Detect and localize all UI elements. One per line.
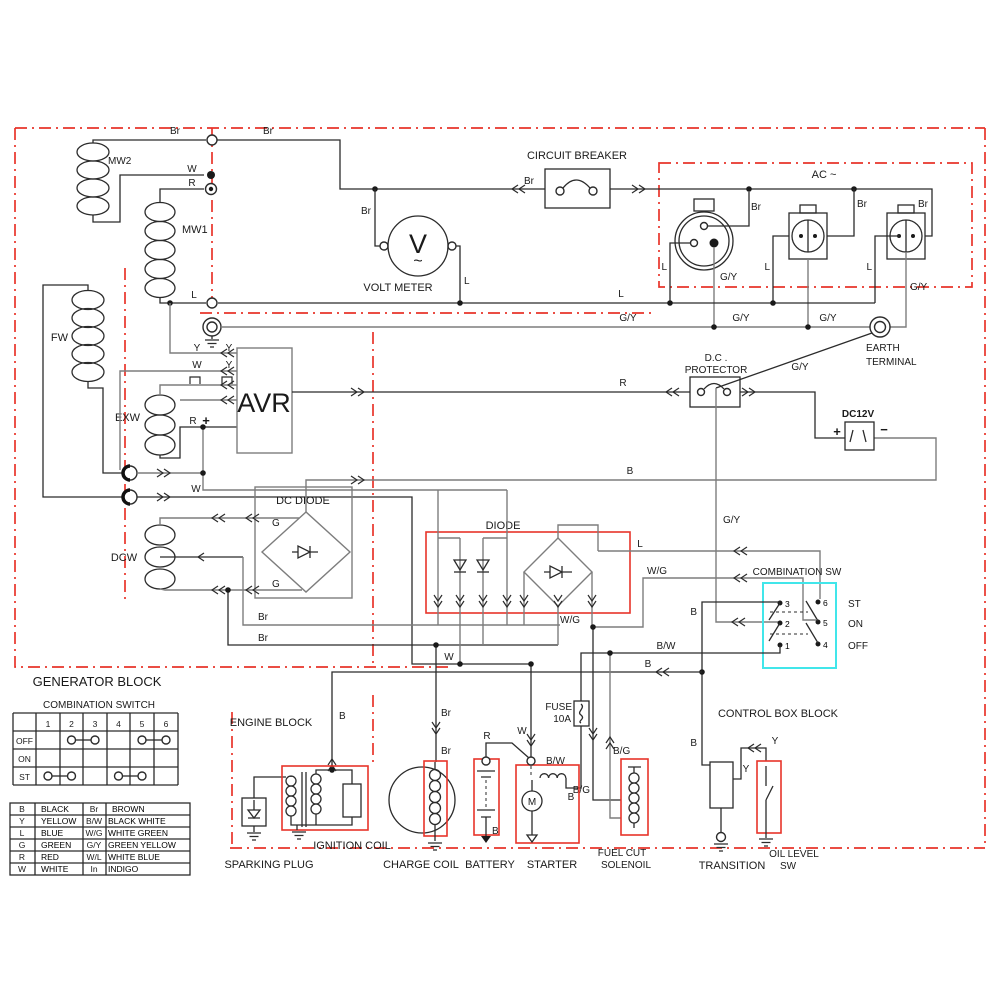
combination-sw: G/Y L W/G W/G COMBINATION SW 3 6 2 5 1 4… (560, 388, 868, 668)
wire-label-br: Br (258, 612, 269, 623)
wire-label-w: W (192, 360, 202, 371)
coil-mw2: MW2 (77, 140, 206, 222)
wire-label-y: Y (226, 360, 233, 371)
charge-coil-label: CHARGE COIL (383, 859, 459, 871)
wire-label-w: W (187, 164, 197, 175)
wire-label-br: Br (263, 126, 274, 137)
fuse-label2: 10A (553, 714, 571, 725)
legend-name: BLACK WHITE (108, 816, 166, 826)
legend-name: YELLOW (41, 816, 76, 826)
volt-meter: V ~ VOLT METER Br L (361, 189, 470, 303)
wire-label-w: W (517, 726, 527, 737)
transition: TRANSITION (699, 762, 766, 872)
oil-level-sw: Y Y OIL LEVEL SW (733, 736, 819, 872)
table-col-1: 1 (46, 719, 51, 729)
bullet-connectors: W (123, 466, 531, 757)
legend-name: WHITE BLUE (108, 852, 160, 862)
coil-label-exw: EXW (115, 412, 141, 424)
wire-label-l: L (661, 262, 667, 273)
ac-block-label: AC ~ (812, 169, 837, 181)
wire-label-b: B (492, 826, 499, 837)
ac-outlet-3: Br L G/Y (866, 199, 928, 327)
wire-label-g: G (272, 518, 280, 529)
combination-switch-table-title: COMBINATION SWITCH (43, 700, 155, 711)
fuel-cut-solenoid: FUEL CUT SOLENOIL (598, 759, 652, 871)
wire-label-l: L (191, 290, 197, 301)
ignition-coil-label: IGNITION COIL (313, 840, 391, 852)
circuit-breaker-label: CIRCUIT BREAKER (527, 150, 627, 162)
br-buses: Br Br (225, 557, 560, 645)
legend-code: W (18, 864, 26, 874)
wire-label-l: L (464, 276, 470, 287)
wire-label-y: Y (226, 343, 233, 354)
legend-code: In (90, 864, 97, 874)
l-bus: L (167, 289, 875, 306)
b-wire: B B B B (328, 602, 780, 771)
legend-code: R (19, 852, 25, 862)
wire-label-gy: G/Y (819, 313, 837, 324)
starter-motor-label: M (528, 797, 536, 808)
table-row-off: OFF (16, 736, 33, 746)
table-col-5: 5 (140, 719, 145, 729)
legend-code: B (19, 804, 25, 814)
oil-level-label2: SW (780, 861, 797, 872)
fuel-cut-label2: SOLENOIL (601, 860, 651, 871)
diode-label: DIODE (486, 520, 521, 532)
dc-protector: D.C . PROTECTOR R (292, 353, 845, 438)
wire-label-l: L (637, 539, 643, 550)
circuit-breaker: CIRCUIT BREAKER (527, 150, 627, 208)
legend-name: INDIGO (108, 864, 139, 874)
wire-label-gy: G/Y (791, 362, 809, 373)
earth-terminal-label1: EARTH (866, 343, 900, 354)
wire-label-gy: G/Y (723, 515, 741, 526)
table-row-st: ST (19, 772, 30, 782)
sparking-plug-label: SPARKING PLUG (224, 859, 313, 871)
color-legend-table: B BLACK Br BROWN Y YELLOW B/W BLACK WHIT… (10, 803, 190, 875)
generator-terminals: Br W R L (170, 126, 221, 347)
wire-label-r: R (189, 416, 196, 427)
dc12v-socket: DC12V + − (833, 409, 888, 450)
gy-bus: G/Y G/Y G/Y (221, 313, 870, 330)
legend-code: Br (90, 804, 99, 814)
wire-label-gy: G/Y (619, 313, 637, 324)
legend-code: Y (19, 816, 25, 826)
control-box-label: CONTROL BOX BLOCK (718, 708, 839, 720)
wire-label-b: B (339, 711, 346, 722)
wire-label-wg: W/G (560, 615, 580, 626)
wire-label-y: Y (743, 764, 750, 775)
coil-exw: EXW (115, 385, 237, 458)
table-col-2: 2 (69, 719, 74, 729)
fuse-label1: FUSE (545, 702, 572, 713)
dc12v-label: DC12V (842, 409, 875, 420)
legend-name: RED (41, 852, 59, 862)
legend-name: WHITE (41, 864, 69, 874)
ac-outlet-round: Br L G/Y (661, 192, 761, 327)
wire-label-w: W (444, 652, 454, 663)
generator-block-title: GENERATOR BLOCK (33, 674, 162, 689)
fuel-cut-label1: FUEL CUT (598, 848, 647, 859)
battery-label: BATTERY (465, 859, 515, 871)
wire-label-br: Br (751, 202, 762, 213)
sparking-plug: SPARKING PLUG (224, 777, 313, 871)
legend-name: BROWN (112, 804, 145, 814)
wire-label-l: L (618, 289, 624, 300)
position-off: OFF (848, 641, 868, 652)
wire-label-b: B (690, 607, 697, 618)
legend-code: G (19, 840, 26, 850)
terminal-2: 2 (785, 619, 790, 629)
terminal-5: 5 (823, 618, 828, 628)
wire-label-br: Br (524, 176, 535, 187)
legend-code: W/L (86, 852, 101, 862)
wire-label-l: L (866, 262, 872, 273)
ac-outlet-2: Br L (764, 189, 867, 327)
volt-meter-label: VOLT METER (363, 282, 432, 294)
position-st: ST (848, 599, 861, 610)
wire-label-bg: B/G (573, 785, 590, 796)
terminal-br (207, 135, 217, 145)
wire-label-bg: B/G (613, 746, 630, 757)
wire-label-b: B (690, 738, 697, 749)
wire-label-br: Br (258, 633, 269, 644)
battery: R B BATTERY (465, 731, 529, 871)
dc-protector-label2: PROTECTOR (685, 365, 748, 376)
wire-label-br: Br (441, 708, 452, 719)
legend-code: L (20, 828, 25, 838)
transition-label: TRANSITION (699, 860, 766, 872)
wire-label-b: B (645, 659, 652, 670)
legend-code: W/G (86, 828, 103, 838)
wire-label-wg: W/G (647, 566, 667, 577)
terminal-6: 6 (823, 598, 828, 608)
coil-mw1: MW1 (145, 189, 208, 303)
legend-name: BLACK (41, 804, 69, 814)
table-col-3: 3 (93, 719, 98, 729)
terminal-l (207, 298, 217, 308)
terminal-1: 1 (785, 641, 790, 651)
earth-terminal-label2: TERMINAL (866, 357, 917, 368)
bw-wire: B/W FUSE 10A B (545, 641, 780, 803)
wire-label-br: Br (857, 199, 868, 210)
coil-fw: FW (43, 285, 122, 497)
legend-name: BLUE (41, 828, 64, 838)
dc-protector-label1: D.C . (705, 353, 728, 364)
legend-name: WHITE GREEN (108, 828, 168, 838)
wire-label-bw: B/W (546, 756, 565, 767)
terminal-3: 3 (785, 599, 790, 609)
wire-label-gy: G/Y (720, 272, 738, 283)
wire-label-y: Y (194, 343, 201, 354)
table-row-on: ON (18, 754, 31, 764)
coil-label-fw: FW (51, 332, 69, 344)
diode-block: DIODE (426, 490, 630, 664)
wire-label-r: R (188, 178, 195, 189)
terminal-4: 4 (823, 640, 828, 650)
dc-diode-label: DC DIODE (276, 495, 330, 507)
wire-label-gy: G/Y (910, 282, 928, 293)
wire-label-gy: G/Y (732, 313, 750, 324)
wire-label-y: Y (772, 736, 779, 747)
table-col-6: 6 (164, 719, 169, 729)
wire-label-w: W (191, 484, 201, 495)
top-br-wire: Br Br (217, 126, 932, 236)
volt-meter-wave: ~ (413, 253, 422, 270)
starter: B/W M STARTER (516, 756, 579, 871)
terminal-w (207, 171, 215, 179)
dc12v-plus: + (833, 424, 841, 439)
wire-label-r: R (619, 378, 626, 389)
engine-block-label: ENGINE BLOCK (230, 717, 313, 729)
wire-label-br: Br (170, 126, 181, 137)
legend-name: GREEN YELLOW (108, 840, 176, 850)
generator-wiring-diagram: MW2 MW1 FW EXW DCW Br W R L Br Br CIRCUI… (0, 0, 994, 994)
wire-label-br: Br (441, 746, 452, 757)
wire-label-br: Br (918, 199, 929, 210)
combination-sw-label: COMBINATION SW (753, 567, 842, 578)
wire-label-bw: B/W (657, 641, 676, 652)
table-col-4: 4 (116, 719, 121, 729)
wire-label-b: B (627, 466, 634, 477)
wire-label-g: G (272, 579, 280, 590)
legend-code: B/W (86, 816, 102, 826)
oil-level-label1: OIL LEVEL (769, 849, 819, 860)
wire-label-l: L (764, 262, 770, 273)
wire-label-br: Br (361, 206, 372, 217)
wire-label-r: R (483, 731, 490, 742)
legend-name: GREEN (41, 840, 71, 850)
ignition-coil: IGNITION COIL (282, 766, 391, 852)
dc12v-minus: − (880, 422, 888, 437)
coil-label-mw1: MW1 (182, 224, 208, 236)
generator-block-table: GENERATOR BLOCK COMBINATION SWITCH 1 2 3… (13, 674, 178, 785)
charge-coil: Br Br CHARGE COIL (383, 642, 459, 871)
coil-label-mw2: MW2 (108, 156, 132, 167)
coil-label-dcw: DCW (111, 552, 138, 564)
starter-label: STARTER (527, 859, 577, 871)
legend-code: G/Y (87, 840, 102, 850)
avr-label: AVR (237, 388, 291, 418)
position-on: ON (848, 619, 863, 630)
